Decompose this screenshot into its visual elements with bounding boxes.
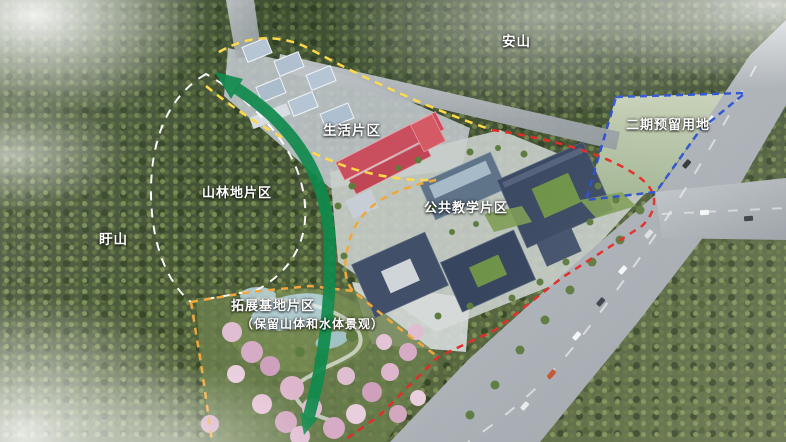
masterplan-rendering: 安山 盱山 生活片区 山林地片区 公共教学片区 二期预留用地 拓展基地片区 （保… [0, 0, 786, 442]
site-plan-canvas [0, 0, 786, 442]
